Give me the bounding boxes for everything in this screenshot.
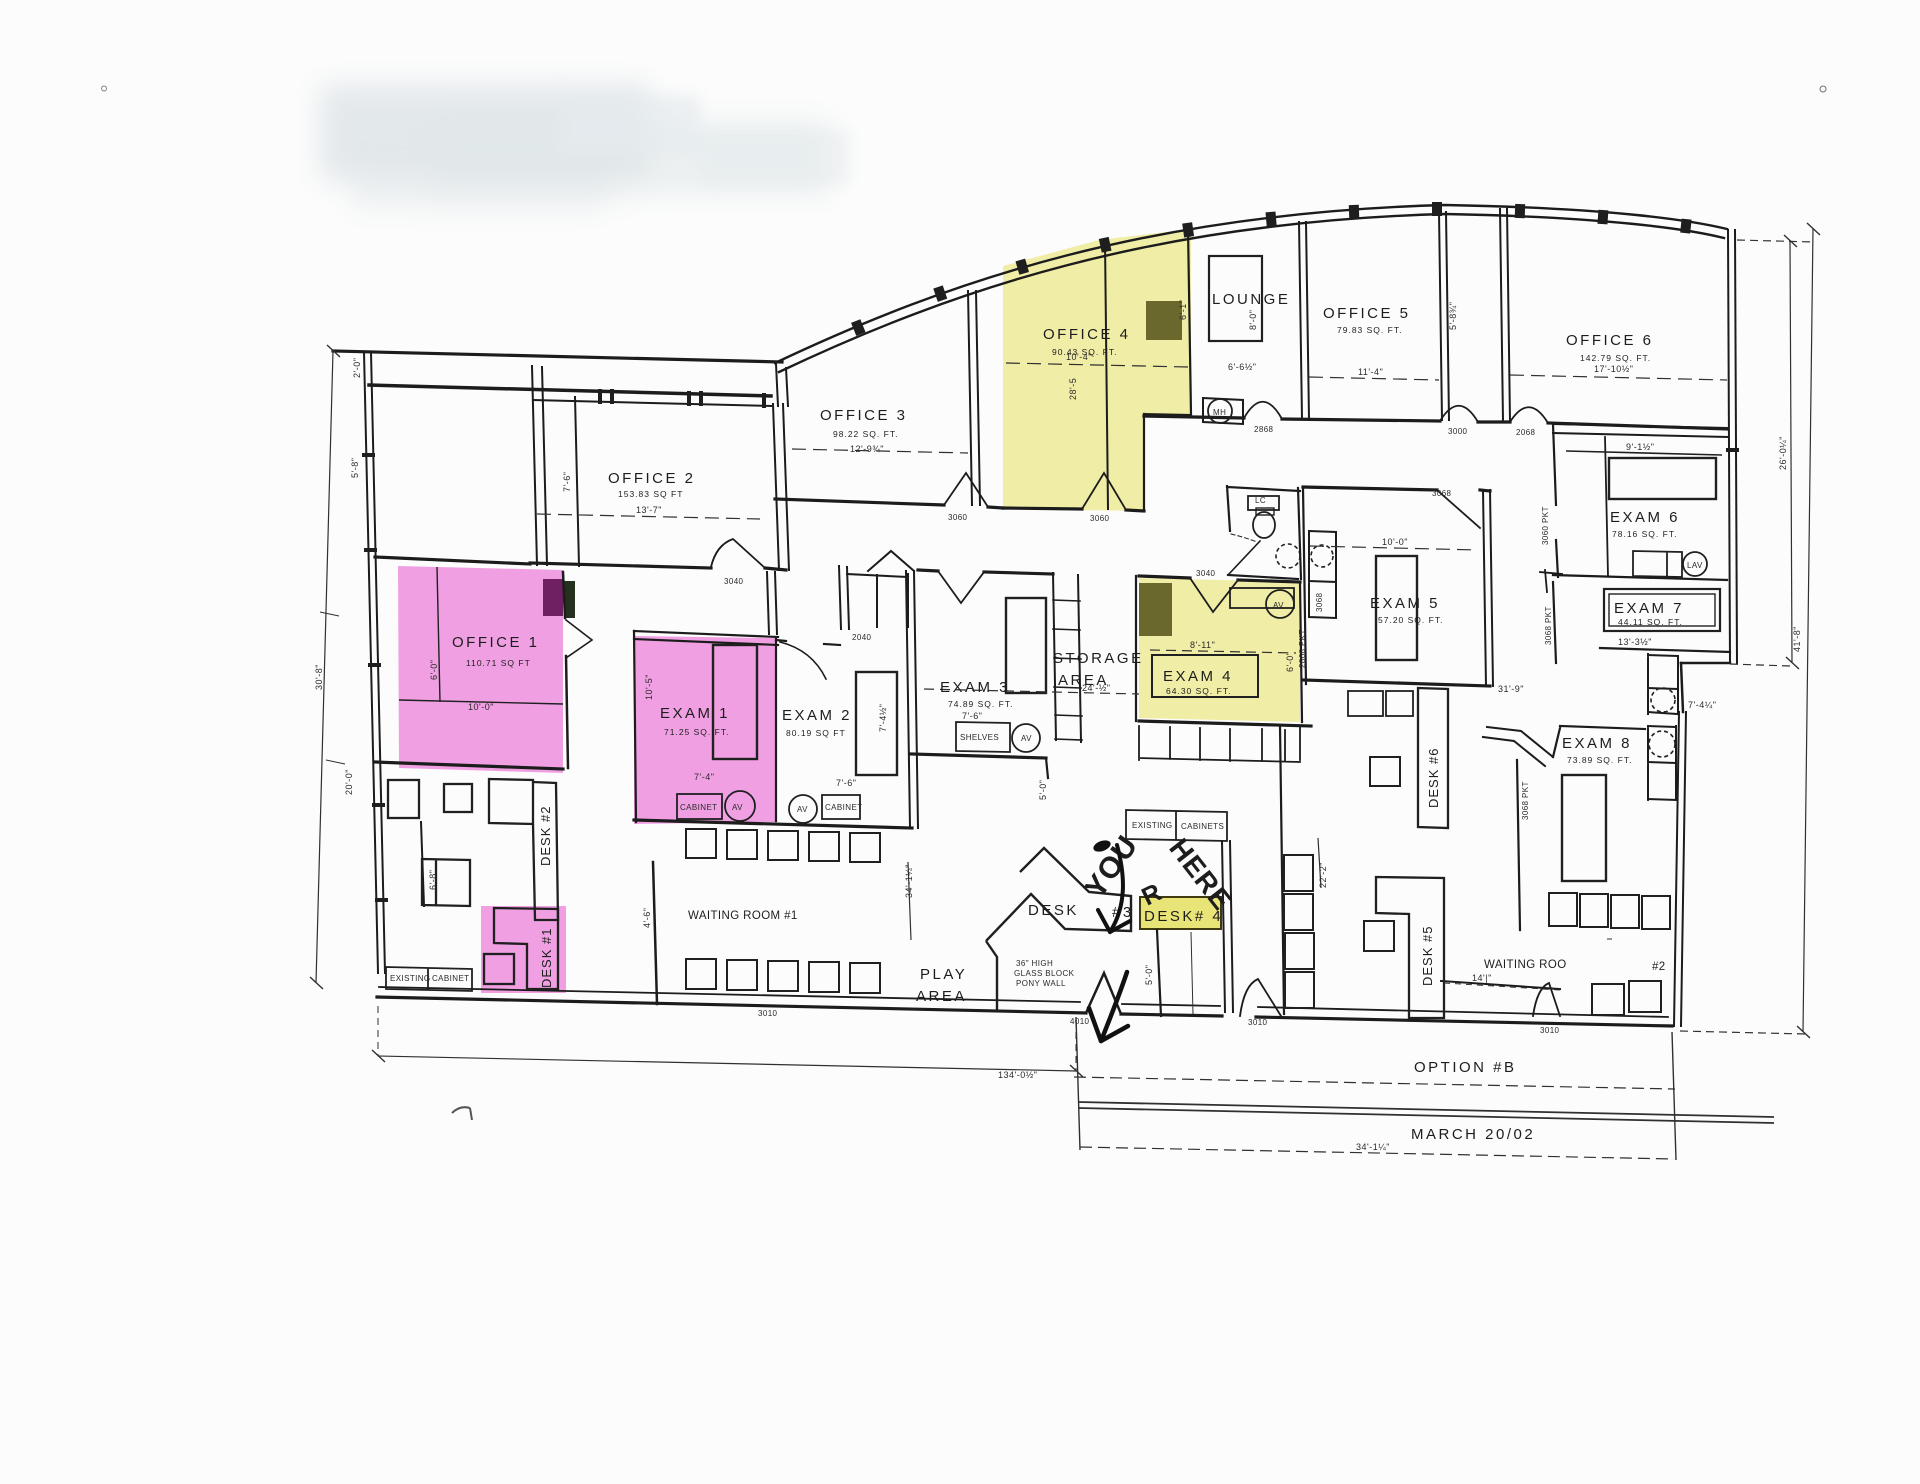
svg-text:EXAM 8: EXAM 8 <box>1562 735 1632 752</box>
svg-text:17'-10½": 17'-10½" <box>1594 364 1633 374</box>
svg-text:DESK #2: DESK #2 <box>538 806 553 866</box>
svg-text:110.71 SQ FT: 110.71 SQ FT <box>466 658 531 668</box>
svg-text:#2: #2 <box>1652 961 1666 973</box>
svg-text:80.19 SQ FT: 80.19 SQ FT <box>786 728 846 738</box>
svg-text:8'-0": 8'-0" <box>1248 310 1258 330</box>
svg-text:2040: 2040 <box>852 633 872 642</box>
svg-text:12'-9¾": 12'-9¾" <box>850 444 884 454</box>
svg-text:13'-3½": 13'-3½" <box>1618 637 1652 647</box>
svg-text:7'-4½": 7'-4½" <box>878 704 888 732</box>
svg-text:26'-0¼": 26'-0¼" <box>1778 436 1788 470</box>
svg-text:41'-8": 41'-8" <box>1792 626 1802 652</box>
svg-text:DESK #5: DESK #5 <box>1420 926 1435 986</box>
svg-text:WAITING ROO: WAITING ROO <box>1484 959 1567 971</box>
svg-text:10'-0": 10'-0" <box>1382 537 1408 547</box>
svg-text:134'-0½": 134'-0½" <box>998 1070 1037 1080</box>
svg-text:3010: 3010 <box>758 1009 778 1018</box>
svg-text:DESK #1: DESK #1 <box>539 928 554 988</box>
svg-text:2068: 2068 <box>1516 428 1536 437</box>
svg-text:3010: 3010 <box>1248 1018 1268 1027</box>
svg-text:7'-6": 7'-6" <box>562 472 572 492</box>
svg-text:28'-5: 28'-5 <box>1068 378 1078 400</box>
svg-text:5'-8¾": 5'-8¾" <box>1448 302 1458 330</box>
svg-text:10'-5": 10'-5" <box>644 674 654 700</box>
svg-text:CABINETS: CABINETS <box>1181 822 1224 831</box>
svg-text:STORAGE: STORAGE <box>1053 650 1144 667</box>
svg-text:71.25 SQ. FT.: 71.25 SQ. FT. <box>664 727 729 737</box>
svg-text:OFFICE 3: OFFICE 3 <box>820 407 908 424</box>
svg-text:OFFICE 4: OFFICE 4 <box>1043 326 1131 343</box>
svg-text:73.89 SQ. FT.: 73.89 SQ. FT. <box>1567 755 1632 765</box>
svg-text:DESK #6: DESK #6 <box>1426 748 1441 808</box>
svg-text:EXAM 5: EXAM 5 <box>1370 595 1440 612</box>
svg-text:9'-1½": 9'-1½" <box>1626 442 1654 452</box>
svg-text:36" HIGH: 36" HIGH <box>1016 959 1053 968</box>
svg-text:OFFICE 6: OFFICE 6 <box>1566 332 1654 349</box>
svg-text:AV: AV <box>732 803 743 812</box>
svg-text:44.11 SQ. FT.: 44.11 SQ. FT. <box>1618 617 1683 627</box>
svg-text:6'-6½": 6'-6½" <box>1228 362 1256 372</box>
svg-text:3068 PKT: 3068 PKT <box>1544 606 1553 645</box>
svg-text:79.83 SQ. FT.: 79.83 SQ. FT. <box>1337 325 1402 335</box>
svg-text:5'-0": 5'-0" <box>1144 965 1154 985</box>
svg-text:3040: 3040 <box>1196 569 1216 578</box>
svg-text:24'-½": 24'-½" <box>1082 683 1110 693</box>
svg-text:EXAM 2: EXAM 2 <box>782 707 852 724</box>
svg-text:8'-11": 8'-11" <box>1190 640 1215 650</box>
svg-text:EXAM 7: EXAM 7 <box>1614 600 1684 617</box>
svg-text:AV: AV <box>1273 601 1284 610</box>
svg-text:EXISTING: EXISTING <box>390 974 431 983</box>
svg-text:4010: 4010 <box>1070 1017 1090 1026</box>
svg-text:7'-4": 7'-4" <box>694 772 714 782</box>
svg-text:7'-6": 7'-6" <box>962 711 982 721</box>
svg-text:78.16 SQ. FT.: 78.16 SQ. FT. <box>1612 529 1677 539</box>
svg-text:5'-8": 5'-8" <box>350 458 360 478</box>
svg-text:10'-0": 10'-0" <box>468 702 494 712</box>
svg-text:PLAY: PLAY <box>920 966 967 983</box>
svg-text:AV: AV <box>1021 734 1032 743</box>
svg-text:EXAM 3: EXAM 3 <box>940 679 1010 696</box>
svg-text:3060: 3060 <box>948 513 968 522</box>
svg-text:LOUNGE: LOUNGE <box>1212 291 1290 308</box>
svg-text:2868: 2868 <box>1254 425 1274 434</box>
svg-text:MARCH 20/02: MARCH 20/02 <box>1411 1126 1535 1143</box>
svg-text:22'-2": 22'-2" <box>1318 862 1328 888</box>
svg-text:2868 PKT: 2868 PKT <box>1298 629 1307 668</box>
svg-text:3068 PKT: 3068 PKT <box>1521 781 1530 820</box>
svg-text:64.30 SQ. FT.: 64.30 SQ. FT. <box>1166 686 1231 696</box>
svg-text:11'-4": 11'-4" <box>1358 367 1383 377</box>
svg-text:74.89 SQ. FT.: 74.89 SQ. FT. <box>948 699 1013 709</box>
svg-text:GLASS BLOCK: GLASS BLOCK <box>1014 969 1075 978</box>
svg-text:13'-7": 13'-7" <box>636 505 662 515</box>
svg-text:CABINET: CABINET <box>432 974 469 983</box>
svg-text:34'-1¼": 34'-1¼" <box>904 864 914 898</box>
svg-text:DESK: DESK <box>1028 902 1079 919</box>
svg-text:7'-6": 7'-6" <box>836 778 856 788</box>
svg-text:3068: 3068 <box>1315 592 1324 612</box>
svg-text:6'-8": 6'-8" <box>428 870 438 890</box>
svg-text:CABINET: CABINET <box>680 803 717 812</box>
svg-text:MH: MH <box>1213 408 1226 417</box>
svg-text:142.79 SQ. FT.: 142.79 SQ. FT. <box>1580 353 1651 363</box>
svg-text:SHELVES: SHELVES <box>960 733 999 742</box>
svg-text:EXAM 1: EXAM 1 <box>660 705 730 722</box>
svg-text:3040: 3040 <box>724 577 744 586</box>
svg-text:3068: 3068 <box>1432 489 1452 498</box>
svg-text:4'-6": 4'-6" <box>642 908 652 928</box>
svg-text:31'-9": 31'-9" <box>1498 684 1524 694</box>
svg-text:EXAM 4: EXAM 4 <box>1163 668 1233 685</box>
svg-text:3000: 3000 <box>1448 427 1468 436</box>
svg-text:3060: 3060 <box>1090 514 1110 523</box>
svg-text:14'|": 14'|" <box>1472 973 1492 983</box>
svg-text:10'-4": 10'-4" <box>1066 352 1092 362</box>
svg-text:AV: AV <box>797 805 808 814</box>
svg-text:3010: 3010 <box>1540 1026 1560 1035</box>
svg-text:OPTION #B: OPTION #B <box>1414 1059 1517 1076</box>
svg-text:98.22 SQ. FT.: 98.22 SQ. FT. <box>833 429 898 439</box>
svg-text:20'-0": 20'-0" <box>344 769 354 795</box>
svg-text:CABINET: CABINET <box>825 803 862 812</box>
svg-text:7'-4¼": 7'-4¼" <box>1688 700 1716 710</box>
svg-text:34'-1¼": 34'-1¼" <box>1356 1142 1390 1152</box>
svg-text:WAITING ROOM #1: WAITING ROOM #1 <box>688 910 798 922</box>
svg-text:OFFICE 2: OFFICE 2 <box>608 470 696 487</box>
svg-text:6'-0": 6'-0" <box>429 660 439 680</box>
svg-text:PONY WALL: PONY WALL <box>1016 979 1066 988</box>
svg-text:6'-1": 6'-1" <box>1178 300 1188 320</box>
svg-text:153.83 SQ FT: 153.83 SQ FT <box>618 489 683 499</box>
svg-text:57.20 SQ. FT.: 57.20 SQ. FT. <box>1378 615 1443 625</box>
svg-text:LAV: LAV <box>1687 561 1703 570</box>
svg-text:EXAM 6: EXAM 6 <box>1610 509 1680 526</box>
svg-text:EXISTING: EXISTING <box>1132 821 1173 830</box>
svg-text:OFFICE 1: OFFICE 1 <box>452 634 540 651</box>
svg-text:LC: LC <box>1255 496 1266 505</box>
svg-text:3060 PKT: 3060 PKT <box>1541 506 1550 545</box>
svg-text:OFFICE 5: OFFICE 5 <box>1323 305 1411 322</box>
svg-text:2'-0": 2'-0" <box>352 358 362 378</box>
svg-text:5'-0": 5'-0" <box>1038 780 1048 800</box>
svg-text:30'-8": 30'-8" <box>314 664 324 690</box>
svg-text:AREA: AREA <box>916 988 967 1005</box>
svg-text:6'-0": 6'-0" <box>1285 652 1295 672</box>
